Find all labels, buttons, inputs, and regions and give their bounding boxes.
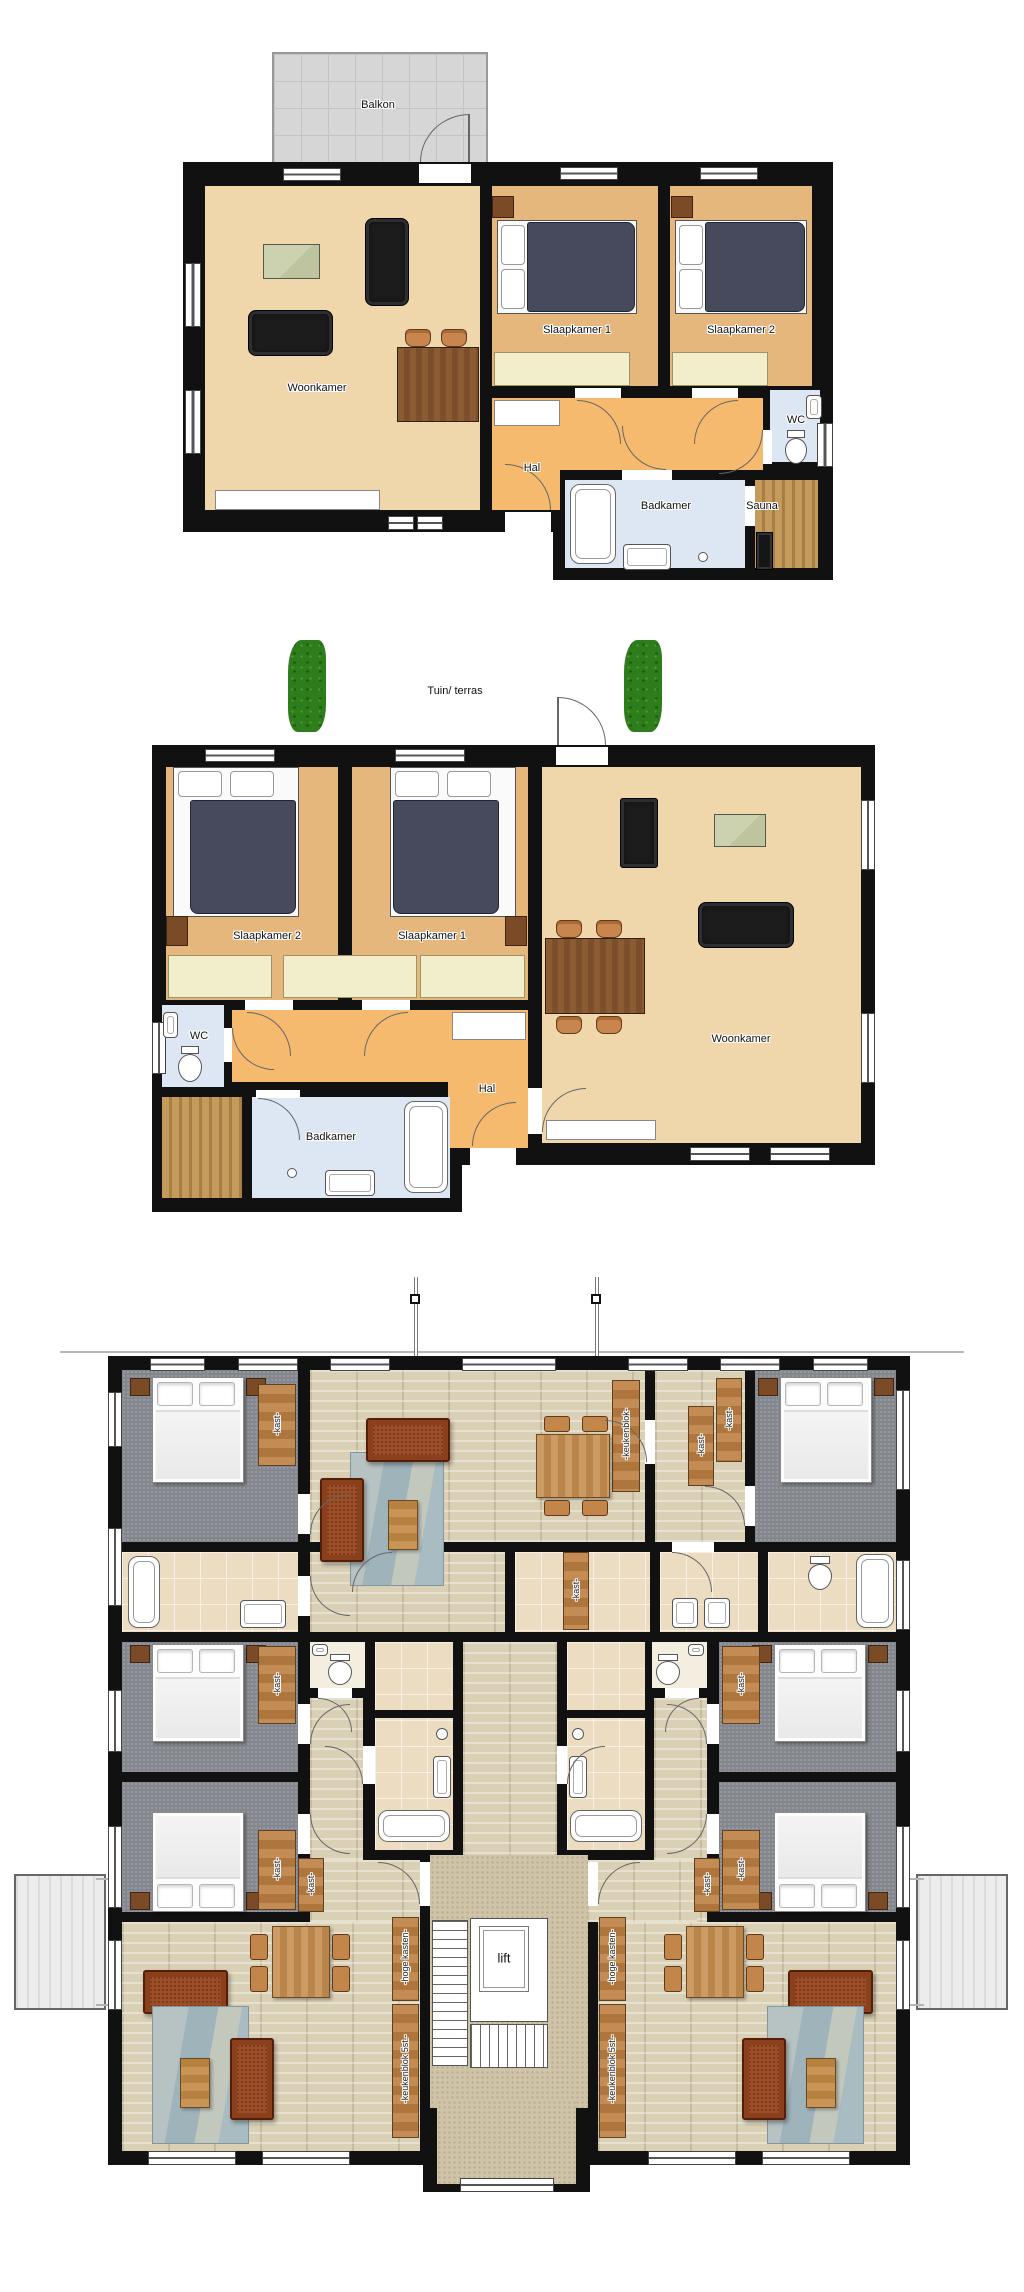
nightstand [671,196,693,218]
door [298,1494,310,1534]
sofa [365,218,409,306]
pillow [501,269,525,309]
window [108,1690,122,1752]
label-woonkamer: Woonkamer [287,382,346,394]
label-slaapkamer-1: Slaapkamer 1 [543,324,611,336]
pillow [447,771,491,797]
tall-cabinet [620,798,658,868]
nightstand [868,1645,888,1663]
dining-chair [544,1416,570,1432]
pillow [178,771,222,797]
washbasin [672,1598,698,1628]
nightstand [758,1378,778,1396]
toilet-tank [658,1654,678,1661]
washbasin [433,1756,451,1798]
bedroom-cabinet [283,955,417,998]
door-leaf [557,697,559,745]
nightstand [130,1378,150,1396]
window [560,167,618,180]
dining-table [272,1926,330,1998]
dining-table [545,938,645,1014]
label-lift: lift [498,1951,511,1966]
toilet-tank [787,430,805,438]
coffee-table [180,2058,210,2108]
post-cap [591,1294,601,1304]
label-kast: -kast- [736,1858,746,1881]
stairs [432,1920,468,2066]
terrace-door [556,747,608,765]
door [224,1028,232,1062]
door [245,1000,293,1010]
bathtub [856,1554,894,1628]
label-kast: -kast- [272,1673,282,1696]
shower-head-icon [287,1168,297,1178]
tv-cabinet [714,814,766,847]
window [690,1147,750,1161]
window [896,1390,910,1490]
dining-chair [664,1966,682,1992]
pillow [501,225,525,265]
dining-table [686,1926,744,1998]
bedroom-cabinet [420,955,525,998]
window [861,1013,875,1083]
washbasin [325,1170,375,1196]
stairs [470,2024,548,2068]
pillow [827,1382,863,1406]
dining-chair [596,920,622,938]
door [557,1746,567,1784]
pillow [679,225,703,265]
label-kast: -kast- [272,1413,282,1436]
toilet-tank [330,1654,350,1661]
bedroom-cabinet [672,352,768,386]
pillow [395,771,439,797]
sofa [248,310,333,356]
nightstand [874,1378,894,1396]
window [861,800,875,870]
post-cap [410,1294,420,1304]
label-kast: -kast- [306,1873,316,1896]
hand-basin [312,1644,328,1656]
toilet-tank [810,1556,830,1564]
shower-head-icon [698,552,708,562]
label-kast: -kast- [571,1579,581,1602]
hall-cabinet [494,400,560,426]
pillow [821,1884,857,1908]
window [628,1358,688,1371]
bathtub [570,1810,642,1842]
window [817,423,833,467]
pillow [199,1884,235,1908]
door [362,1000,410,1010]
hall-cabinet [452,1012,526,1040]
door [363,1746,375,1784]
dining-chair [332,1966,350,1992]
pillow [779,1884,815,1908]
hand-basin [806,395,822,419]
label-kast: -kast- [272,1858,282,1881]
interior-wall [567,1710,645,1718]
bathtub [128,1556,160,1628]
label-hoge-kasten: -hoge kasten- [400,1929,410,1984]
window [262,2151,350,2165]
label-keukenblok: -keukenblok- [621,1408,631,1460]
entrance-door [470,1148,516,1166]
bathtub [404,1101,448,1193]
door [707,1814,719,1854]
label-hal: Hal [479,1083,496,1095]
label-keukenblok-5st: -keukenblok 5st.- [607,2035,617,2104]
window [813,1358,868,1371]
door [528,1088,542,1134]
door [672,1542,714,1552]
label-kast: -kast- [736,1673,746,1696]
terrace-right [916,1874,1008,2010]
nightstand [130,1645,150,1663]
door [763,430,772,464]
door [256,1090,300,1098]
label-balkon: Balkon [361,99,395,111]
window [896,1690,910,1752]
bedroom-cabinet [168,955,272,998]
door [622,470,672,480]
dining-chair [250,1934,268,1960]
door [298,1576,310,1616]
duvet [190,800,296,914]
window [185,390,201,454]
bay-window [460,2178,554,2192]
floor-plans-canvas: Balkon Woonkamer Slaapkamer 1 Slaapkamer… [0,0,1024,2292]
bedroom-cabinet [494,352,630,386]
hand-basin [688,1644,704,1656]
door-leaf [468,114,470,162]
window [330,1358,390,1371]
nightstand [130,1892,150,1910]
bathtub [570,484,616,564]
duvet [705,222,805,312]
door [298,1814,310,1854]
pillow [199,1649,235,1673]
label-hal: Hal [524,462,541,474]
window [762,2151,850,2165]
roof-edge-line [60,1351,964,1353]
pillow [157,1884,193,1908]
pillow [679,269,703,309]
coffee-table [806,2058,836,2108]
downpipe-post [595,1277,599,1357]
door [745,1486,755,1526]
door [692,388,738,398]
door [575,388,621,398]
window [108,1826,122,1908]
label-kast: -kast- [696,1434,706,1457]
dining-chair [596,1016,622,1034]
washbasin [240,1600,286,1628]
window [148,2151,236,2165]
toilet-tank [181,1046,199,1054]
pillow [157,1382,193,1406]
label-kast: -kast- [724,1408,734,1431]
terrace-left [14,1874,106,2010]
bathtub [378,1810,450,1842]
shower-head-icon [436,1728,448,1740]
interior-wall [375,1710,453,1718]
window [205,749,275,762]
window [770,1147,830,1161]
entrance-bay [437,2100,576,2184]
duvet [527,222,635,312]
label-tuin-terras: Tuin/ terras [427,685,482,697]
dining-chair [405,329,431,347]
pillow [230,771,274,797]
dining-chair [441,329,467,347]
door [298,1704,310,1744]
window [185,263,201,327]
label-wc: WC [787,414,805,426]
window [150,1358,205,1371]
sauna-wood-area [162,1097,242,1198]
window [283,168,341,181]
label-keukenblok-5st: -keukenblok 5st.- [400,2035,410,2104]
sofa [366,1418,450,1462]
low-cabinet [215,490,380,510]
entrance-door [505,512,551,532]
label-badkamer: Badkamer [306,1131,356,1143]
dining-chair [746,1966,764,1992]
label-badkamer: Badkamer [641,500,691,512]
tv-cabinet [263,244,320,279]
washbasin [704,1598,730,1628]
door [420,1862,430,1906]
door [318,1688,352,1698]
pillow [157,1649,193,1673]
window [896,1826,910,1908]
dining-table [536,1434,610,1498]
window [238,1358,298,1371]
label-sauna: Sauna [746,500,778,512]
dining-chair [556,920,582,938]
balcony-door [419,164,471,183]
label-slaapkamer-2: Slaapkamer 2 [707,324,775,336]
nightstand [505,916,527,946]
nightstand [492,196,514,218]
pillow [779,1649,815,1673]
window [648,2151,736,2165]
door [588,1862,598,1906]
window [108,1528,122,1606]
window [388,516,414,530]
label-slaapkamer-2: Slaapkamer 2 [233,930,301,942]
sofa [698,902,794,948]
label-kast: -kast- [702,1873,712,1896]
label-hoge-kasten: -hoge kasten- [607,1929,617,1984]
window [108,1392,122,1447]
hedge-plant [288,640,326,732]
window [417,516,443,530]
label-slaapkamer-1: Slaapkamer 1 [398,930,466,942]
window [700,167,758,180]
hedge-plant [624,640,662,732]
dining-chair [544,1500,570,1516]
dining-chair [582,1500,608,1516]
pillow [785,1382,821,1406]
label-woonkamer: Woonkamer [711,1033,770,1045]
dining-chair [664,1934,682,1960]
window [462,1358,556,1371]
sofa [230,2038,274,2120]
window [896,1940,910,2010]
window [395,749,465,762]
dining-chair [556,1016,582,1034]
downpipe-post [414,1277,418,1357]
dining-table [397,347,479,422]
door [707,1704,719,1744]
pillow [199,1382,235,1406]
window [896,1560,910,1630]
door [665,1688,699,1698]
duvet [393,800,499,914]
nightstand [166,916,188,946]
door-arc [558,697,606,745]
hand-basin [163,1012,178,1038]
sauna-heater [756,532,773,570]
coffee-table [388,1500,418,1550]
shower-head-icon [572,1728,584,1740]
dining-chair [250,1966,268,1992]
nightstand [868,1892,888,1910]
pillow [821,1649,857,1673]
washbasin [623,544,671,570]
label-wc: WC [190,1030,208,1042]
window [108,1940,122,2010]
dining-chair [746,1934,764,1960]
sofa [742,2038,786,2120]
dining-chair [332,1934,350,1960]
window [720,1358,780,1371]
